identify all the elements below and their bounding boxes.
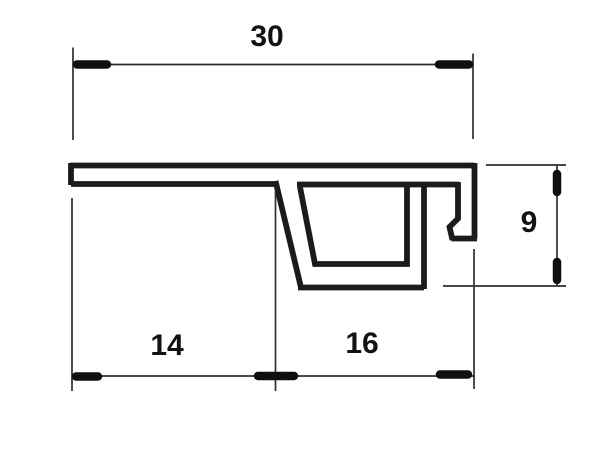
technical-drawing-canvas: 30 14 16 9	[0, 0, 600, 450]
dimension-bottom-widths: 14 16	[72, 190, 475, 391]
dimension-right-height: 9	[443, 165, 566, 286]
dimension-label-30: 30	[250, 20, 283, 53]
profile-outer-diagonal-wall	[276, 181, 302, 288]
dimension-label-9: 9	[521, 206, 538, 239]
dimension-label-16: 16	[345, 327, 378, 360]
profile-hook-inner-barb	[450, 182, 459, 240]
profile-outline	[70, 163, 477, 289]
dimension-top-width: 30	[73, 20, 473, 140]
dimension-label-14: 14	[150, 329, 184, 362]
profile-channel-inner-cavity	[300, 186, 407, 265]
drawing-area: 30 14 16 9	[0, 0, 600, 450]
